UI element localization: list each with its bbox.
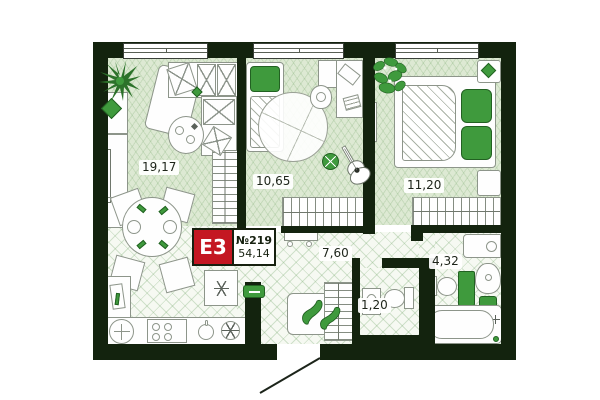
vent-icon — [214, 281, 229, 296]
bed-mattress — [402, 85, 456, 161]
burner — [152, 333, 160, 341]
bed-pillow-green — [461, 126, 492, 160]
wall-right — [501, 42, 516, 360]
washing-machine-icon — [463, 234, 501, 258]
bath-decor — [493, 336, 499, 342]
stove-icon — [147, 319, 187, 343]
sofa-cushion — [217, 64, 236, 96]
room-area-label-bathroom: 4,32 — [429, 254, 462, 269]
kettle-icon — [198, 324, 214, 340]
chair-seat — [316, 92, 326, 102]
table-decor — [191, 123, 198, 130]
burner — [152, 323, 160, 331]
plate — [127, 220, 141, 234]
napkin — [158, 206, 168, 216]
napkin — [158, 240, 168, 250]
washer-door — [486, 241, 497, 252]
window-bedroom1 — [253, 43, 344, 59]
wardrobe-bedroom1 — [282, 197, 372, 228]
shoes-icon — [295, 297, 345, 331]
wardrobe-bedroom2 — [412, 197, 501, 226]
guitar-icon — [334, 142, 374, 188]
wall-wc-bottom — [352, 335, 435, 344]
bed-pillow-green — [461, 89, 492, 123]
desk-chair — [310, 85, 332, 109]
sink-line — [121, 324, 122, 340]
sink-line — [114, 331, 130, 332]
unit-total-area: 54,14 — [238, 247, 270, 260]
wall-bedroom1-hall — [281, 226, 375, 233]
wall-bottom-right — [320, 344, 516, 360]
wall-living-bedroom1 — [237, 58, 246, 232]
plant-icon — [371, 56, 409, 102]
pot-icon — [221, 321, 240, 340]
kitchen-sink-icon — [109, 319, 134, 344]
bench-leg — [287, 241, 293, 247]
unit-type-badge: E3 — [194, 230, 234, 264]
sofa-cushion — [203, 99, 235, 125]
bathroom-sink-icon — [475, 263, 501, 294]
bathtub-basin — [428, 310, 494, 339]
toilet-tank — [404, 287, 414, 309]
coffee-table — [168, 116, 204, 154]
window-tick — [166, 48, 167, 53]
bottle-label — [115, 293, 120, 305]
room-area-label-bedroom2: 11,20 — [404, 178, 444, 193]
wall-wc-bathroom — [419, 258, 435, 344]
hall-bench — [284, 232, 318, 241]
window-living — [123, 43, 208, 59]
bench-slot — [249, 291, 260, 293]
bed-pillow-green — [250, 66, 280, 92]
room-area-label-hallway: 7,60 — [319, 246, 352, 261]
window-tick — [437, 48, 438, 53]
floor-plan: 19,17 10,65 11,20 7,60 4,32 1,20 E3 №219… — [0, 0, 600, 400]
nightstand — [477, 170, 501, 196]
bench-leg — [306, 241, 312, 247]
room-area-label-wc: 1,20 — [358, 298, 391, 313]
napkin — [136, 240, 146, 250]
bath-cabinet-green — [458, 271, 475, 306]
wall-bottom-left — [93, 344, 277, 360]
wall-wc-top — [382, 258, 419, 268]
unit-badge: E3 №219 54,14 — [192, 228, 276, 266]
unit-info: №219 54,14 — [234, 230, 274, 264]
bench-green — [243, 285, 265, 298]
wall-bedroom2-hall — [411, 225, 501, 233]
wall-corner-nub — [411, 225, 423, 241]
dining-table — [122, 197, 182, 257]
wardrobe-living — [212, 150, 238, 224]
plate — [163, 220, 177, 234]
room-area-label-bedroom1: 10,65 — [253, 174, 293, 189]
cup — [175, 126, 184, 135]
window-tick — [299, 48, 300, 53]
napkin — [136, 204, 146, 214]
faucet-icon — [495, 315, 496, 324]
room-area-label-living: 19,17 — [139, 160, 179, 175]
toilet-icon — [437, 277, 457, 296]
kettle-handle — [205, 320, 208, 326]
plant-icon — [97, 58, 143, 104]
burner — [164, 323, 172, 331]
burner — [164, 333, 172, 341]
unit-number: №219 — [236, 234, 272, 247]
kitchen-cabinet — [204, 270, 238, 306]
sink-drain — [485, 274, 492, 281]
cup — [186, 135, 195, 144]
